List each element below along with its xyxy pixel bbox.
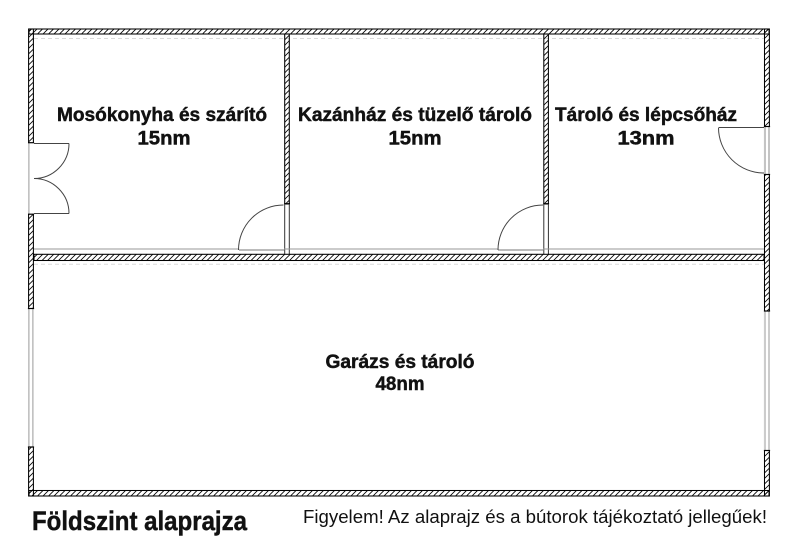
svg-text:13nm: 13nm	[618, 129, 675, 150]
svg-text:15nm: 15nm	[138, 129, 191, 150]
svg-text:Tároló és lépcsőház: Tároló és lépcsőház	[555, 105, 737, 126]
svg-text:15nm: 15nm	[389, 129, 442, 150]
svg-text:Mosókonyha és szárító: Mosókonyha és szárító	[57, 105, 267, 126]
svg-text:Földszint alaprajza: Földszint alaprajza	[32, 506, 248, 536]
svg-text:48nm: 48nm	[376, 374, 425, 395]
svg-text:Kazánház és tüzelő tároló: Kazánház és tüzelő tároló	[298, 105, 532, 126]
svg-text:Garázs és tároló: Garázs és tároló	[326, 352, 475, 373]
svg-text:Figyelem! Az alaprajz és a bút: Figyelem! Az alaprajz és a bútorok tájék…	[303, 507, 767, 527]
